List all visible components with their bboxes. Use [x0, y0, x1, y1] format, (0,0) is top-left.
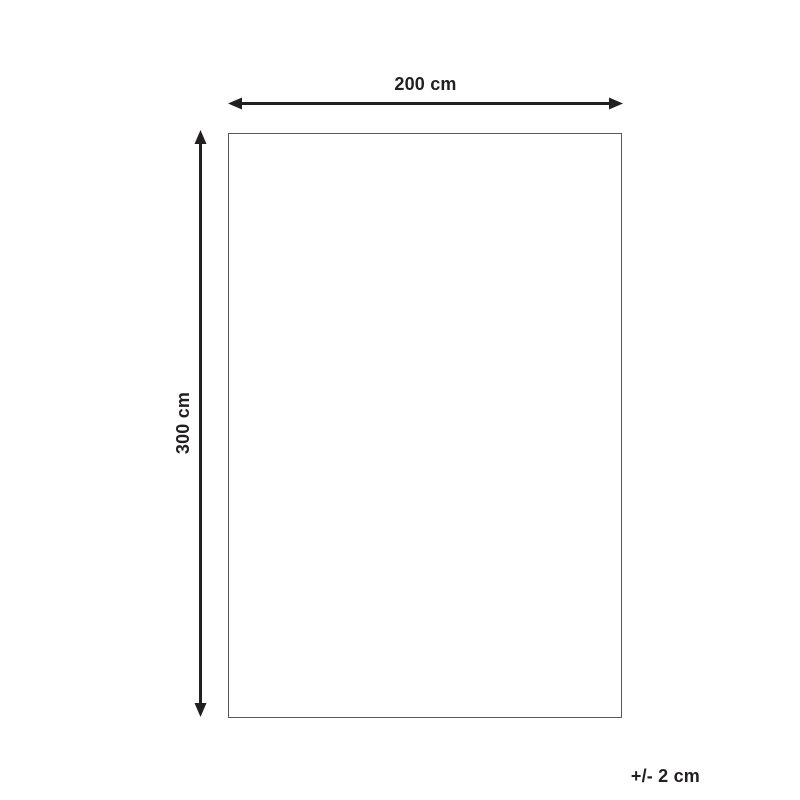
- height-dimension-arrow: [193, 130, 208, 717]
- width-dimension-arrow: [228, 96, 623, 111]
- product-outline-rectangle: [228, 133, 622, 718]
- arrowhead-up-icon: [195, 130, 207, 144]
- tolerance-label: +/- 2 cm: [440, 766, 700, 787]
- width-dimension-label: 200 cm: [228, 74, 623, 95]
- dimension-diagram-canvas: 200 cm 300 cm +/- 2 cm: [0, 0, 800, 800]
- arrowhead-left-icon: [228, 98, 242, 110]
- arrowhead-right-icon: [609, 98, 623, 110]
- arrowhead-down-icon: [195, 703, 207, 717]
- height-dimension-label: 300 cm: [173, 363, 195, 483]
